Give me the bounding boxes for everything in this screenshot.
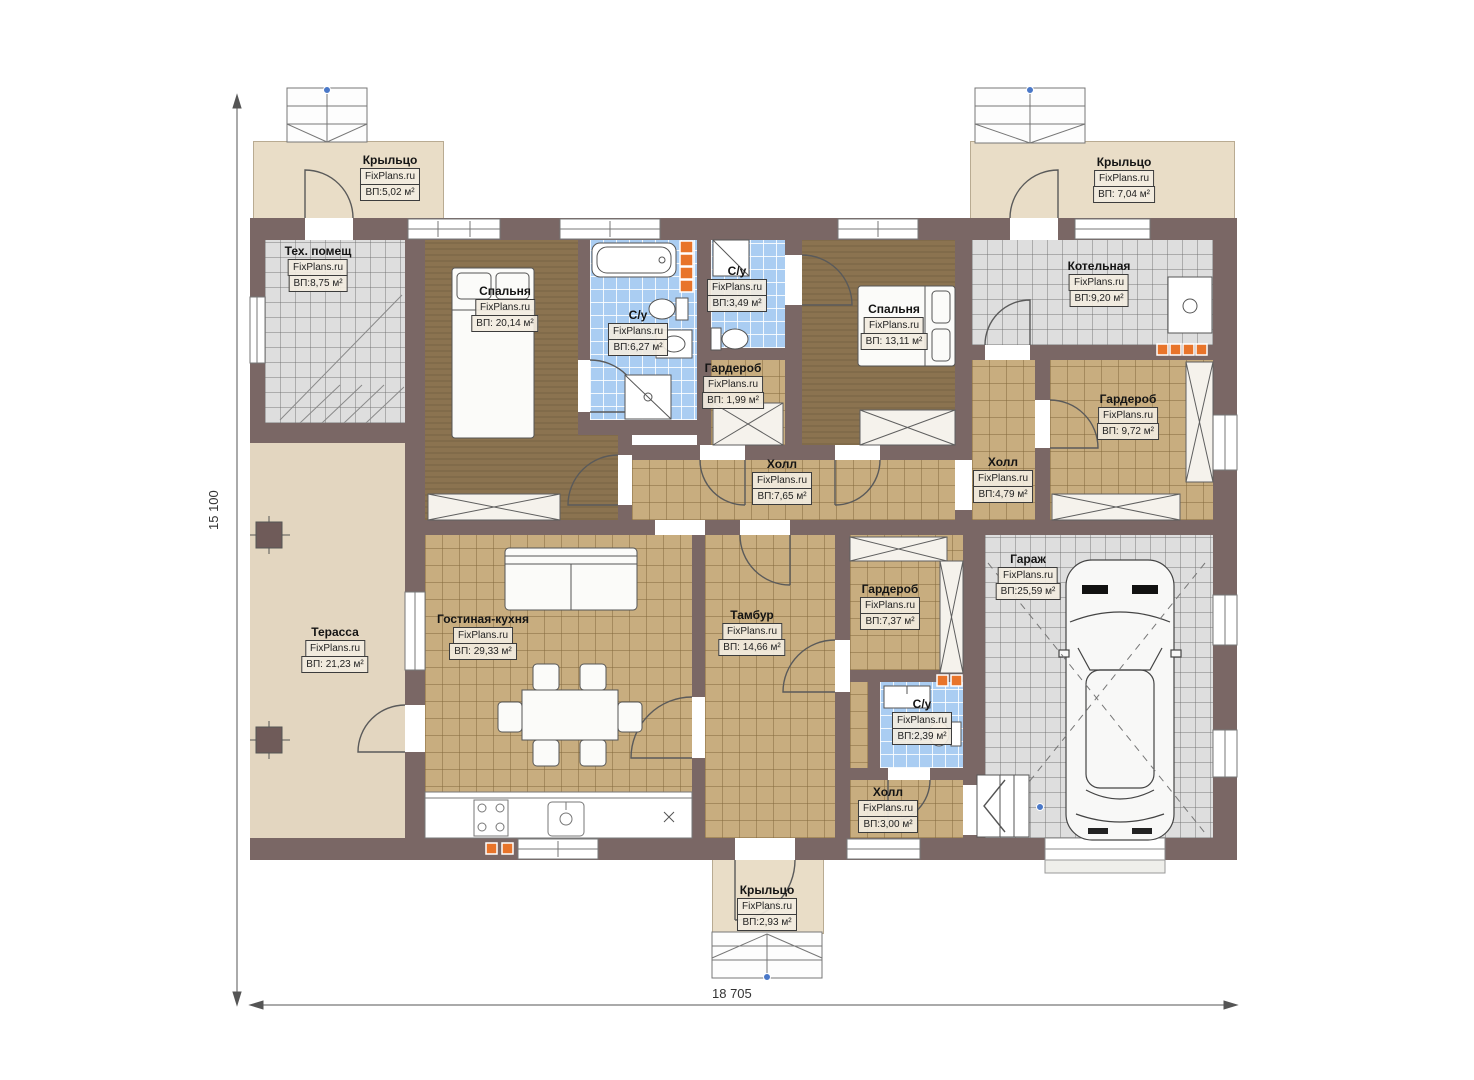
room-name: Гостиная-кухня: [437, 612, 529, 626]
window-icon: [560, 219, 660, 239]
room-name: Гараж: [1010, 552, 1046, 566]
post-icon: [250, 721, 290, 759]
room-area: ВП:7,37 м²: [860, 613, 919, 630]
window-icon: [1213, 415, 1237, 470]
room-name: Гардероб: [705, 361, 762, 375]
window-icon: [518, 839, 598, 859]
room-label-porch-top-left: Крыльцо FixPlans.ru ВП:5,02 м²: [360, 153, 420, 201]
window-icon: [250, 297, 265, 363]
room-area: ВП:5,02 м²: [360, 184, 419, 201]
tech-room-hatch: [280, 295, 404, 423]
room-name: Спальня: [868, 302, 920, 316]
garage-steps: [977, 775, 1044, 837]
room-area: ВП:2,39 м²: [892, 728, 951, 745]
room-name: С/у: [728, 264, 747, 278]
kitchen-sink-icon: [548, 802, 584, 836]
window-icon: [1213, 595, 1237, 645]
room-name: Крыльцо: [363, 153, 418, 167]
room-watermark: FixPlans.ru: [737, 898, 797, 915]
room-label-bedroom-1: Спальня FixPlans.ru ВП: 20,14 м²: [471, 284, 538, 332]
room-name: Спальня: [479, 284, 531, 298]
wardrobe-icon: [850, 537, 947, 561]
room-label-hall-small: Холл FixPlans.ru ВП:4,79 м²: [973, 455, 1033, 503]
room-name: Тамбур: [730, 608, 774, 622]
room-watermark: FixPlans.ru: [722, 623, 782, 640]
vent-grille-icon: [486, 843, 513, 854]
canopy-icon: [287, 87, 367, 143]
kitchen-counter: [425, 792, 692, 838]
wardrobe-icon: [940, 561, 963, 673]
room-watermark: FixPlans.ru: [475, 299, 535, 316]
stove-icon: [474, 800, 508, 836]
room-watermark: FixPlans.ru: [288, 259, 348, 276]
vent-grille-icon: [1157, 344, 1207, 355]
room-label-wardrobe-right: Гардероб FixPlans.ru ВП: 9,72 м²: [1097, 392, 1159, 440]
room-watermark: FixPlans.ru: [998, 567, 1058, 584]
room-watermark: FixPlans.ru: [360, 168, 420, 185]
room-name: С/у: [629, 308, 648, 322]
room-watermark: FixPlans.ru: [858, 800, 918, 817]
room-name: Гардероб: [1100, 392, 1157, 406]
room-area: ВП: 9,72 м²: [1097, 423, 1159, 440]
room-name: Котельная: [1068, 259, 1131, 273]
vent-grille-icon: [680, 241, 693, 292]
room-watermark: FixPlans.ru: [707, 279, 767, 296]
room-name: Холл: [988, 455, 1018, 469]
room-area: ВП: 1,99 м²: [702, 392, 764, 409]
dining-table-icon: [498, 664, 642, 766]
room-watermark: FixPlans.ru: [1069, 274, 1129, 291]
room-area: ВП:3,49 м²: [707, 295, 766, 312]
room-name: Терасса: [311, 625, 359, 639]
room-name: Крыльцо: [740, 883, 795, 897]
dimension-height: 15 100: [206, 490, 221, 530]
window-icon: [408, 219, 500, 239]
sofa-icon: [505, 548, 637, 610]
room-name: С/у: [913, 697, 932, 711]
room-label-boiler-room: Котельная FixPlans.ru ВП:9,20 м²: [1068, 259, 1131, 307]
room-area: ВП:25,59 м²: [996, 583, 1061, 600]
bathtub-icon: [592, 243, 676, 277]
room-watermark: FixPlans.ru: [703, 376, 763, 393]
room-watermark: FixPlans.ru: [892, 712, 952, 729]
room-area: ВП:8,75 м²: [288, 275, 347, 292]
room-area: ВП:7,65 м²: [752, 488, 811, 505]
room-name: Холл: [873, 785, 903, 799]
room-area: ВП:4,79 м²: [973, 486, 1032, 503]
toilet-icon: [711, 328, 748, 350]
room-label-bathroom-3: С/у FixPlans.ru ВП:2,39 м²: [892, 697, 952, 745]
room-area: ВП:9,20 м²: [1069, 290, 1128, 307]
room-watermark: FixPlans.ru: [752, 472, 812, 489]
dimension-width: 18 705: [712, 986, 752, 1001]
room-label-terrace: Терасса FixPlans.ru ВП: 21,23 м²: [301, 625, 368, 673]
room-label-bathroom-2: С/у FixPlans.ru ВП:3,49 м²: [707, 264, 767, 312]
garage-door: [1045, 838, 1165, 873]
room-label-bathroom-1: С/у FixPlans.ru ВП:6,27 м²: [608, 308, 668, 356]
window-icon: [1075, 219, 1150, 239]
canopy-icon: [975, 87, 1085, 144]
room-name: Холл: [767, 457, 797, 471]
room-name: Тех. помещ: [285, 244, 352, 258]
room-area: ВП:3,00 м²: [858, 816, 917, 833]
room-label-tambour: Тамбур FixPlans.ru ВП: 14,66 м²: [718, 608, 785, 656]
room-watermark: FixPlans.ru: [973, 470, 1033, 487]
room-area: ВП:2,93 м²: [737, 914, 796, 931]
wardrobe-icon: [1186, 362, 1213, 482]
room-name: Крыльцо: [1097, 155, 1152, 169]
room-watermark: FixPlans.ru: [608, 323, 668, 340]
room-area: ВП: 14,66 м²: [718, 639, 785, 656]
window-icon: [405, 592, 425, 670]
shower-icon: [625, 375, 671, 419]
room-watermark: FixPlans.ru: [305, 640, 365, 657]
boiler-icon: [1168, 277, 1212, 333]
room-area: ВП: 7,04 м²: [1093, 186, 1155, 203]
room-name: Гардероб: [862, 582, 919, 596]
room-watermark: FixPlans.ru: [1098, 407, 1158, 424]
window-icon: [847, 839, 920, 859]
room-area: ВП: 20,14 м²: [471, 315, 538, 332]
wardrobe-icon: [428, 494, 560, 520]
room-label-garage: Гараж FixPlans.ru ВП:25,59 м²: [996, 552, 1061, 600]
wardrobe-icon: [713, 403, 783, 445]
room-watermark: FixPlans.ru: [864, 317, 924, 334]
room-watermark: FixPlans.ru: [1094, 170, 1154, 187]
room-label-porch-bottom: Крыльцо FixPlans.ru ВП:2,93 м²: [737, 883, 797, 931]
room-label-tech-room: Тех. помещ FixPlans.ru ВП:8,75 м²: [285, 244, 352, 292]
room-label-hall-entry: Холл FixPlans.ru ВП:3,00 м²: [858, 785, 918, 833]
room-watermark: FixPlans.ru: [453, 627, 513, 644]
room-area: ВП:6,27 м²: [608, 339, 667, 356]
car-icon: [1059, 560, 1181, 840]
room-label-porch-top-right: Крыльцо FixPlans.ru ВП: 7,04 м²: [1093, 155, 1155, 203]
window-icon: [1213, 730, 1237, 777]
room-label-wardrobe-small: Гардероб FixPlans.ru ВП: 1,99 м²: [702, 361, 764, 409]
room-label-living-kitchen: Гостиная-кухня FixPlans.ru ВП: 29,33 м²: [437, 612, 529, 660]
room-label-wardrobe-mid: Гардероб FixPlans.ru ВП:7,37 м²: [860, 582, 920, 630]
post-icon: [250, 516, 290, 554]
room-label-bedroom-2: Спальня FixPlans.ru ВП: 13,11 м²: [861, 302, 928, 350]
room-label-hall-main: Холл FixPlans.ru ВП:7,65 м²: [752, 457, 812, 505]
vent-grille-icon: [937, 675, 962, 686]
room-area: ВП: 13,11 м²: [861, 333, 928, 350]
floor-plan: Крыльцо FixPlans.ru ВП:5,02 м² Тех. поме…: [0, 0, 1474, 1080]
room-area: ВП: 29,33 м²: [449, 643, 516, 660]
porch-steps-icon: [712, 932, 822, 981]
wardrobe-icon: [860, 410, 955, 445]
room-area: ВП: 21,23 м²: [301, 656, 368, 673]
wardrobe-icon: [1052, 494, 1180, 520]
window-icon: [838, 219, 918, 239]
room-watermark: FixPlans.ru: [860, 597, 920, 614]
